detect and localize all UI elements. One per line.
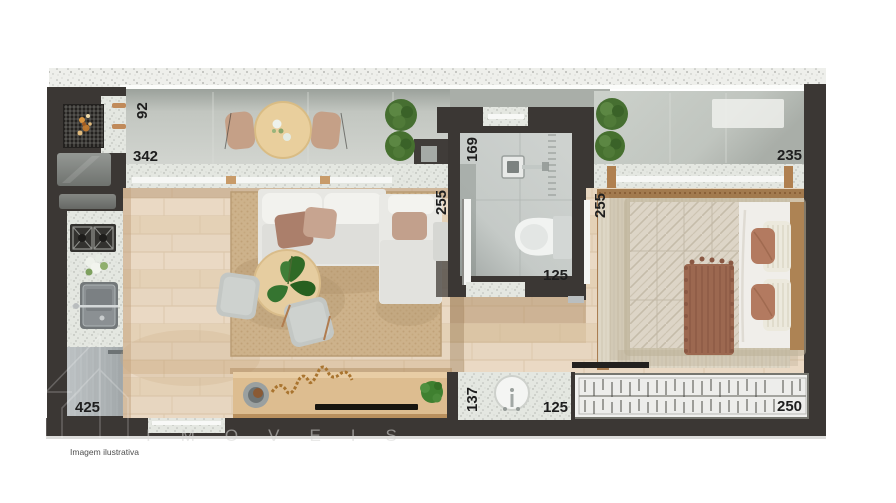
svg-text:IMOVEIS: IMOVEIS [146,426,427,445]
svg-text:125: 125 [543,399,568,416]
svg-text:255: 255 [592,193,609,218]
svg-text:Imagem ilustrativa: Imagem ilustrativa [70,447,139,457]
svg-text:169: 169 [464,137,481,162]
svg-text:342: 342 [133,148,158,165]
svg-text:125: 125 [543,267,568,284]
svg-text:255: 255 [433,190,450,215]
svg-text:92: 92 [134,102,151,119]
svg-text:250: 250 [777,398,802,415]
svg-text:235: 235 [777,147,802,164]
svg-text:137: 137 [464,387,481,412]
svg-text:425: 425 [75,399,100,416]
